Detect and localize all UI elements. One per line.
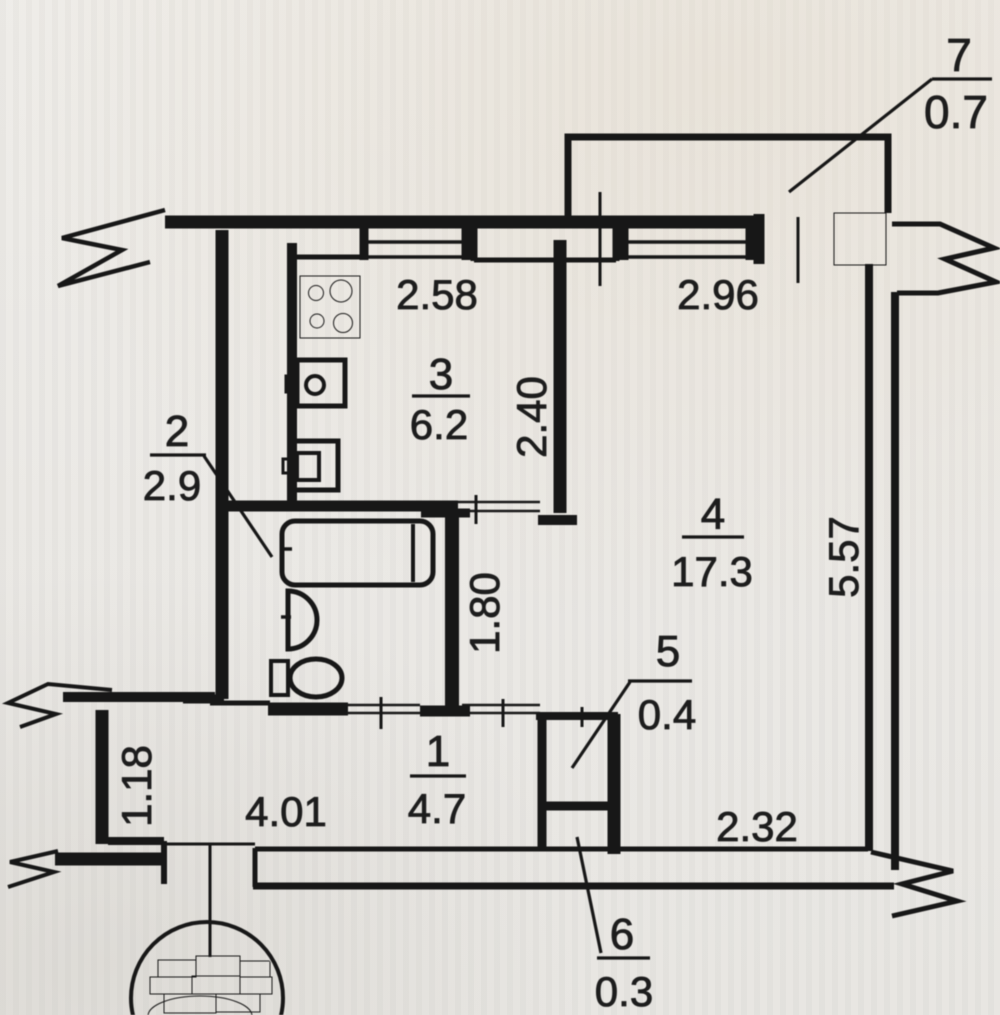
- stove-burner-icon: [310, 314, 324, 328]
- water-heater-dial-icon: [306, 376, 324, 394]
- stove-burner-icon: [330, 280, 352, 302]
- room-7-number: 7: [946, 29, 972, 81]
- corridor-opening-lines: [462, 705, 540, 713]
- dim-kitchen-width: 2.58: [396, 271, 478, 318]
- balcony-outline: [568, 137, 888, 220]
- dim-room4-bottom-width: 2.32: [716, 803, 798, 850]
- kitchen-door-opening: [458, 502, 540, 511]
- dim-bathroom-depth: 1.80: [461, 572, 508, 654]
- room-6-number: 6: [610, 910, 634, 959]
- washbasin-icon: [288, 591, 317, 649]
- scanned-floorplan-page: 7 0.7 2.58 3 6.2 2.40 2 2.9 2.96 4 17.3 …: [0, 0, 1000, 1015]
- toilet-bowl-icon: [290, 659, 342, 697]
- dim-room4-depth: 5.57: [820, 516, 867, 598]
- wall-break-top-left: [58, 210, 165, 286]
- stove-burner-icon: [334, 314, 353, 333]
- room4-window-glazing: [622, 242, 752, 257]
- room-4-number: 4: [701, 490, 725, 539]
- room-5-area: 0.4: [638, 691, 696, 738]
- bathtub-icon: [282, 521, 433, 585]
- dim-hallway-width: 4.01: [245, 788, 327, 835]
- room-6-area: 0.3: [595, 968, 653, 1015]
- wall-break-vestibule-bottom: [8, 851, 58, 887]
- room-2-area: 2.9: [143, 462, 201, 509]
- room-2-number: 2: [165, 407, 189, 456]
- dim-kitchen-depth: 2.40: [508, 376, 555, 458]
- kitchen-sink-basin-icon: [297, 453, 319, 480]
- floorplan-drawing: 7 0.7 2.58 3 6.2 2.40 2 2.9 2.96 4 17.3 …: [0, 0, 1000, 1015]
- stove-burner-icon: [309, 286, 324, 301]
- room-6-leader: [577, 837, 601, 953]
- kitchen-window-glazing: [364, 242, 468, 257]
- bathroom-door-opening: [348, 705, 420, 713]
- wall-top-right-block: [834, 213, 886, 265]
- redaction-pixelation: [148, 956, 272, 1015]
- wall-break-top-right: [892, 224, 996, 293]
- wall-pier-sides: [474, 227, 616, 261]
- room-7-area: 0.7: [924, 86, 988, 138]
- room-4-area: 17.3: [671, 548, 753, 595]
- room-1-area: 4.7: [408, 785, 466, 832]
- dim-vestibule-width: 1.18: [113, 745, 160, 827]
- room-5-number: 5: [656, 627, 680, 676]
- toilet-tank-icon: [271, 661, 288, 695]
- dim-window-span: 2.96: [677, 271, 759, 318]
- room-1-number: 1: [426, 727, 450, 776]
- room-3-number: 3: [429, 350, 453, 399]
- room-3-area: 6.2: [410, 401, 468, 448]
